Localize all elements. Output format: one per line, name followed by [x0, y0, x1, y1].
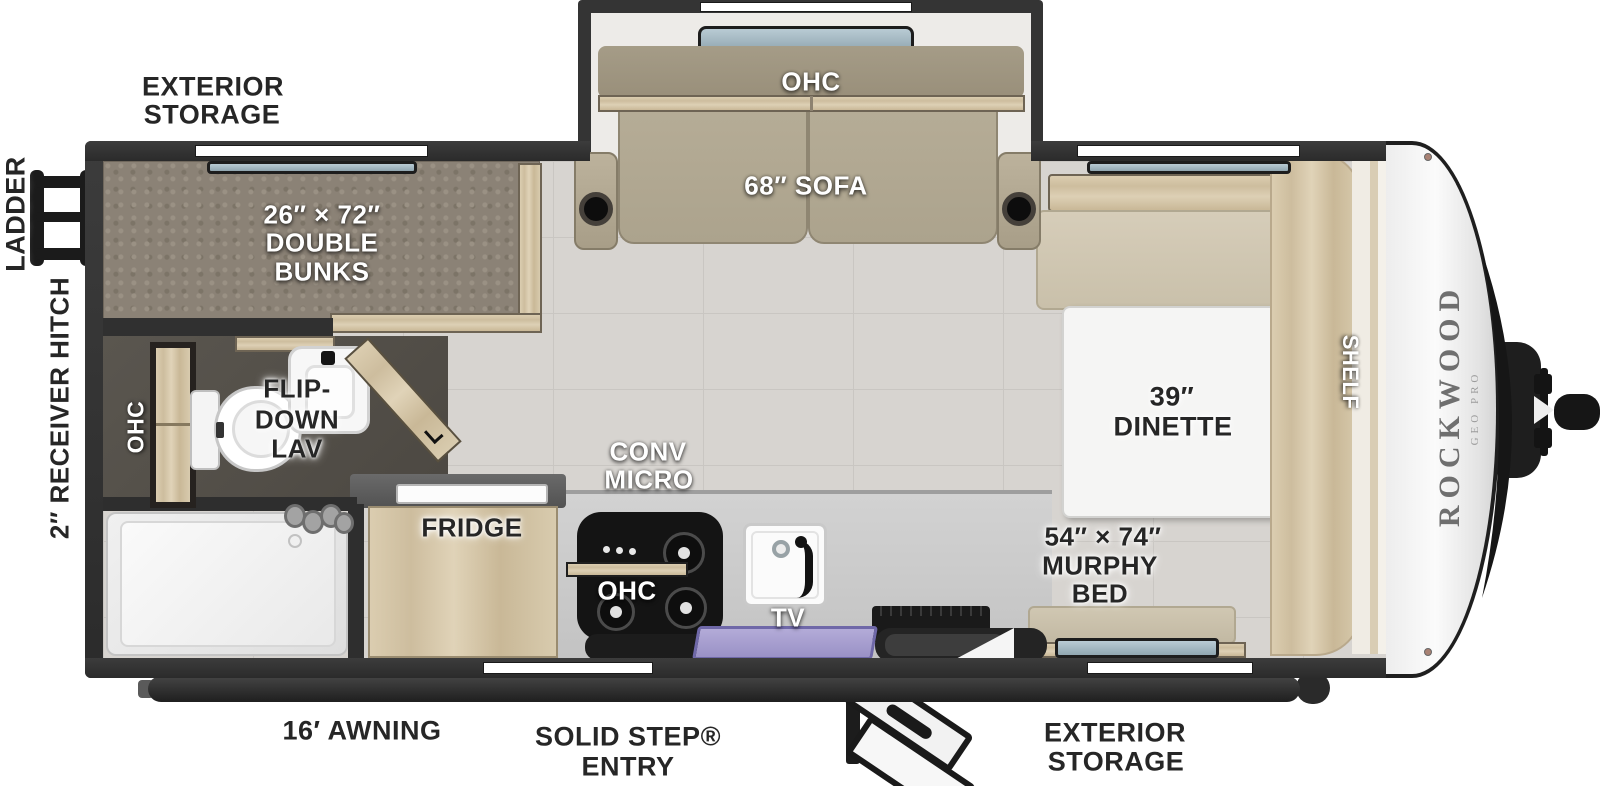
bunk-window-glass [207, 161, 417, 174]
dinette-back-cushion [1036, 210, 1286, 310]
fridge-label: FRIDGE [421, 513, 522, 544]
toilet-hinge [216, 422, 224, 438]
burner-hub-icon [678, 547, 690, 559]
exterior-storage-bottom-line2: STORAGE [1048, 747, 1185, 778]
ladder-label: LADDER [1, 156, 32, 272]
dinette-window-band [1077, 145, 1300, 157]
cap-rivet-icon [1424, 648, 1432, 656]
stove-knob-icon [629, 548, 636, 555]
shower-tub-inner [120, 521, 336, 647]
dinette-label-line2: DINETTE [1113, 412, 1232, 443]
bunk-bath-partition [103, 318, 333, 336]
bunks-label-line1: 26″ × 72″ [264, 200, 381, 231]
bed-window-glass [1055, 638, 1219, 658]
bed-window-band [1087, 662, 1253, 674]
bunk-trim-bottom [330, 313, 542, 333]
slideout-window-band [700, 2, 912, 12]
cap-rivet-icon [1424, 153, 1432, 161]
murphy-label-line1: 54″ × 74″ [1045, 522, 1162, 553]
bunk-trim-right [518, 163, 542, 333]
entry-label-line1: SOLID STEP® [535, 722, 721, 753]
dinette-bench-top [1048, 174, 1296, 212]
exterior-storage-top-line1: EXTERIOR [142, 72, 284, 103]
bath-ohc-seam [156, 423, 190, 426]
cupholder-right-icon [1002, 192, 1036, 226]
shower-drain-icon [288, 534, 302, 548]
bath-ohc-label: OHC [123, 401, 150, 454]
exterior-storage-bottom-line1: EXTERIOR [1044, 718, 1186, 749]
bath-shower-partition [85, 497, 357, 511]
burner-hub-icon [680, 602, 692, 614]
kitchen-ohc-label: OHC [597, 576, 656, 607]
faucet-head-icon [795, 536, 807, 548]
door-handle-icon [424, 424, 444, 444]
sofa-ohc-shelf-seam [810, 96, 813, 111]
shower-curtain-icon [334, 512, 354, 534]
murphy-label-line2: MURPHY [1042, 551, 1158, 582]
receiver-hitch-label: 2″ RECEIVER HITCH [45, 277, 76, 539]
cap-swoosh-icon [1476, 252, 1516, 598]
dinette-label-line1: 39″ [1150, 382, 1194, 413]
fridge-lid [396, 484, 548, 504]
bunks-label-line2: DOUBLE [266, 228, 379, 259]
slide-ohc-label: OHC [781, 67, 840, 98]
bunk-window-band [195, 145, 428, 157]
sofa-label: 68″ SOFA [744, 171, 867, 202]
entry-step-wedge [952, 628, 1014, 661]
entry-label-line2: ENTRY [581, 752, 674, 783]
lav-label-line1: FLIP- [263, 374, 331, 405]
wall-left-rear [85, 141, 103, 678]
floorplan-canvas: OHC 68″ SOFA 26″ × 72″ DOUBLE BUNKS OHC … [0, 0, 1600, 786]
faucet-icon [787, 540, 813, 598]
lav-label-line3: LAV [271, 434, 323, 465]
lav-faucet-icon [321, 351, 335, 365]
kitchen-window-band [483, 662, 653, 674]
conv-micro-label-line2: MICRO [604, 465, 693, 496]
lav-label-line2: DOWN [255, 405, 339, 436]
tongue-jack-handle [1554, 394, 1600, 430]
exterior-storage-top-line2: STORAGE [144, 100, 281, 131]
murphy-label-line3: BED [1072, 579, 1128, 610]
bunks-label-line3: BUNKS [275, 257, 370, 288]
shelf-label: SHELF [1337, 335, 1363, 410]
tv-label: TV [771, 603, 805, 634]
stove-knob-icon [603, 546, 610, 553]
dinette-window-glass [1087, 161, 1291, 174]
stove-knob-icon [616, 547, 623, 554]
awning-label: 16′ AWNING [283, 716, 442, 747]
awning-roller [148, 676, 1300, 702]
hitch-bracket-bottom [1534, 428, 1552, 448]
cupholder-left-icon [579, 192, 613, 226]
brand-sub-logo: GEO PRO [1469, 371, 1481, 446]
brand-logo: ROCKWOOD [1433, 283, 1467, 527]
hitch-bracket-top [1534, 374, 1552, 394]
conv-micro-label-line1: CONV [609, 437, 686, 468]
hitch-coupler-icon [1534, 396, 1554, 424]
burner-hub-icon [610, 606, 622, 618]
